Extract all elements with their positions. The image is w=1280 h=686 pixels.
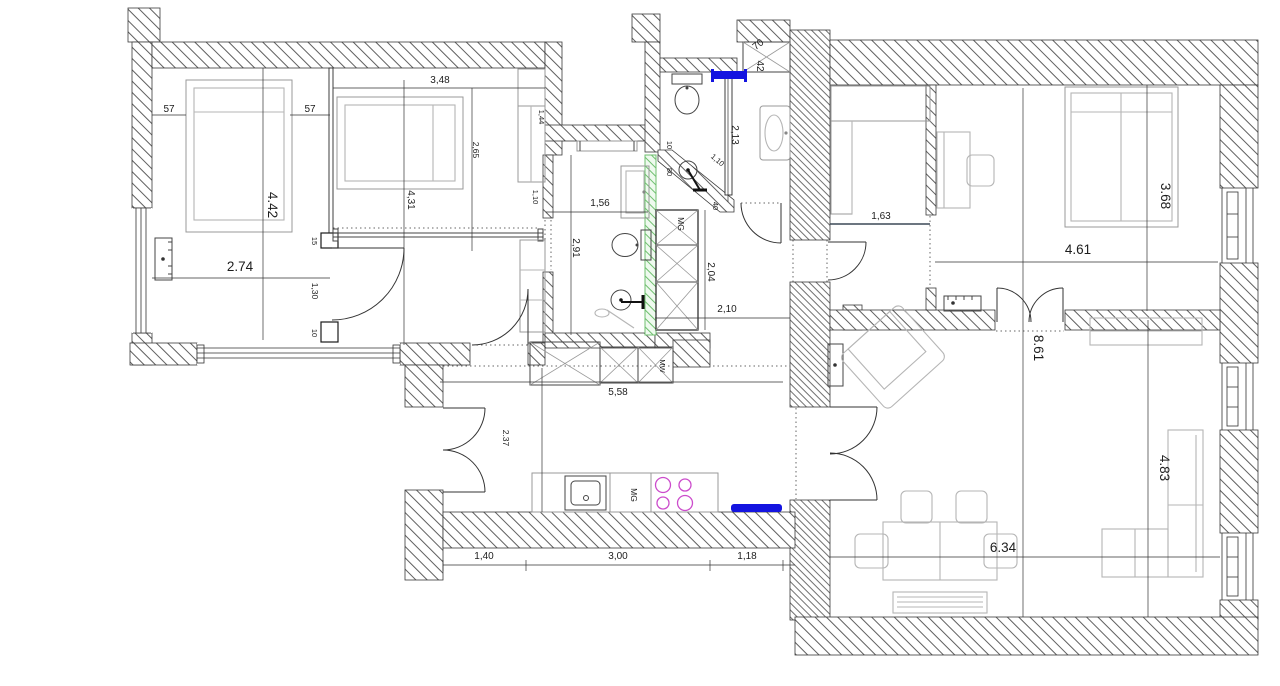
wall-segment: [545, 125, 648, 141]
dim-label: 57: [163, 104, 175, 115]
dim-label: 3.68: [1158, 183, 1173, 209]
blue-bar: [713, 71, 746, 79]
blue-bar-end: [744, 69, 747, 82]
dim-label: 2,91: [570, 238, 581, 258]
window-gap: [132, 208, 152, 333]
dim-label: 4.42: [265, 192, 280, 218]
dim-label: 5,58: [608, 387, 628, 398]
blue-bar-end: [711, 69, 714, 82]
dim-label: 57: [304, 104, 316, 115]
stairwell-wall: [790, 500, 830, 620]
door-frame-block: [321, 322, 338, 342]
wall-segment: [830, 310, 995, 330]
wall-segment: [405, 365, 443, 407]
dim-label: 15: [310, 237, 319, 245]
bedroom1-partition: [329, 68, 333, 233]
dim-label: 4,31: [405, 190, 416, 210]
dim-label: 2,10: [717, 304, 737, 315]
wall-segment: [660, 58, 737, 72]
floor-plan-svg: 57 57 4.42 2.74 15 1,30 10 3,48 2,65 4,3…: [0, 0, 1280, 686]
wall-segment: [128, 8, 160, 42]
closet-label: MG: [676, 217, 686, 231]
wall-segment: [1065, 310, 1220, 330]
dim-label: 1,56: [590, 198, 610, 209]
wall-segment: [443, 512, 795, 548]
wall-segment: [632, 14, 660, 42]
wall-segment: [830, 40, 1258, 85]
dim-label: 4.61: [1065, 242, 1091, 257]
wall-segment: [1220, 85, 1258, 188]
dim-label: 4.83: [1157, 455, 1172, 481]
dim-label: 1,30: [310, 283, 320, 300]
dim-label: 1,63: [871, 211, 891, 222]
wall-segment: [132, 42, 152, 208]
wall-segment: [152, 42, 545, 68]
dim-label: 3,48: [430, 75, 450, 86]
dim-label: 10: [665, 141, 674, 149]
wall-segment: [926, 288, 936, 310]
wall-segment: [795, 617, 1258, 655]
floor-plan-canvas: 57 57 4.42 2.74 15 1,30 10 3,48 2,65 4,3…: [0, 0, 1280, 686]
dim-label: 80: [665, 168, 674, 176]
dim-label: 1,40: [474, 551, 494, 562]
wall-segment: [645, 42, 660, 152]
window-left-wall: [132, 208, 152, 333]
stairwell-wall: [790, 30, 830, 240]
highlighted-radiator-kitchen: [731, 504, 782, 512]
window-bottom-left: [197, 343, 400, 365]
wall-segment: [130, 343, 197, 365]
dim-label: 2,65: [471, 142, 481, 159]
window-gap: [197, 343, 400, 365]
dim-label: 2.74: [227, 259, 254, 274]
dim-label: 10: [310, 329, 319, 337]
dim-label: 2,04: [705, 262, 716, 282]
dim-label: 1,44: [537, 110, 546, 125]
wall-segment: [673, 340, 710, 367]
wall-segment: [400, 343, 470, 365]
dim-label: 1,18: [737, 551, 757, 562]
appliance-label: MW: [658, 359, 667, 373]
dim-label: 40: [711, 202, 720, 210]
dim-label: 6.34: [990, 540, 1017, 555]
stairwell-wall: [790, 282, 830, 407]
wall-segment: [737, 20, 790, 42]
dim-label: 2.37: [501, 430, 511, 447]
wall-segment: [1220, 263, 1258, 363]
wall-segment: [405, 490, 443, 580]
dim-label: 8.61: [1031, 335, 1046, 361]
dim-label: 3,00: [608, 551, 628, 562]
wall-segment: [1220, 430, 1258, 533]
appliance-label: MG: [629, 488, 639, 502]
dim-label: 1,10: [531, 190, 540, 205]
wall-segment: [926, 85, 936, 215]
dim-label: 42: [754, 60, 765, 72]
dim-label: 2,13: [729, 125, 740, 145]
